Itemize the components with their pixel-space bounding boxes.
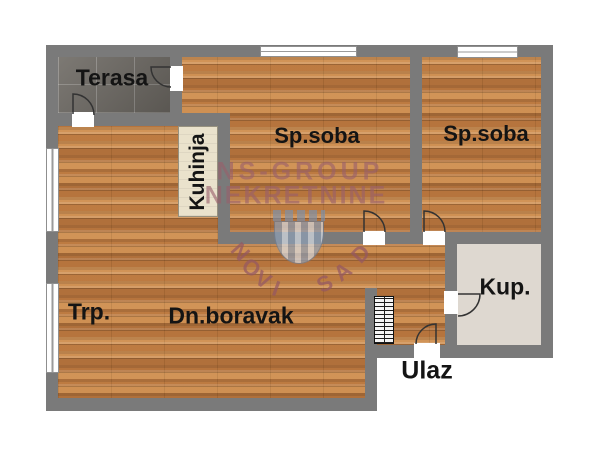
label-kitchen: Kuhinja — [186, 134, 210, 211]
window-dining — [46, 148, 59, 232]
label-terasa: Terasa — [76, 65, 148, 92]
label-entrance: Ulaz — [401, 357, 452, 386]
door-opening-bathroom — [444, 291, 458, 314]
wall-right — [541, 45, 553, 358]
window-bedroom1 — [260, 46, 357, 57]
door-opening-bedroom2 — [423, 231, 445, 245]
floor-plan: Terasa Sp.soba Sp.soba Kuhinja Trp. Dn.b… — [0, 0, 600, 460]
door-opening-terrace-bedroom — [170, 66, 183, 91]
label-living: Dn.boravak — [168, 303, 293, 330]
label-bedroom1: Sp.soba — [274, 123, 360, 149]
wall-bedroom-divider — [410, 45, 422, 244]
wall-kitchen-right — [218, 113, 230, 244]
label-bathroom: Kup. — [479, 274, 530, 301]
wall-bottom — [46, 398, 377, 411]
wall-bedrooms-bottom — [218, 232, 553, 244]
window-living — [46, 283, 59, 373]
door-opening-terrace — [72, 112, 94, 127]
wall-hall-bottom — [365, 345, 553, 358]
label-bedroom2: Sp.soba — [443, 121, 529, 147]
radiator-symbol — [374, 296, 394, 344]
door-opening-bedroom1 — [363, 231, 385, 245]
label-dining: Trp. — [68, 299, 110, 326]
window-bedroom2 — [457, 46, 518, 58]
